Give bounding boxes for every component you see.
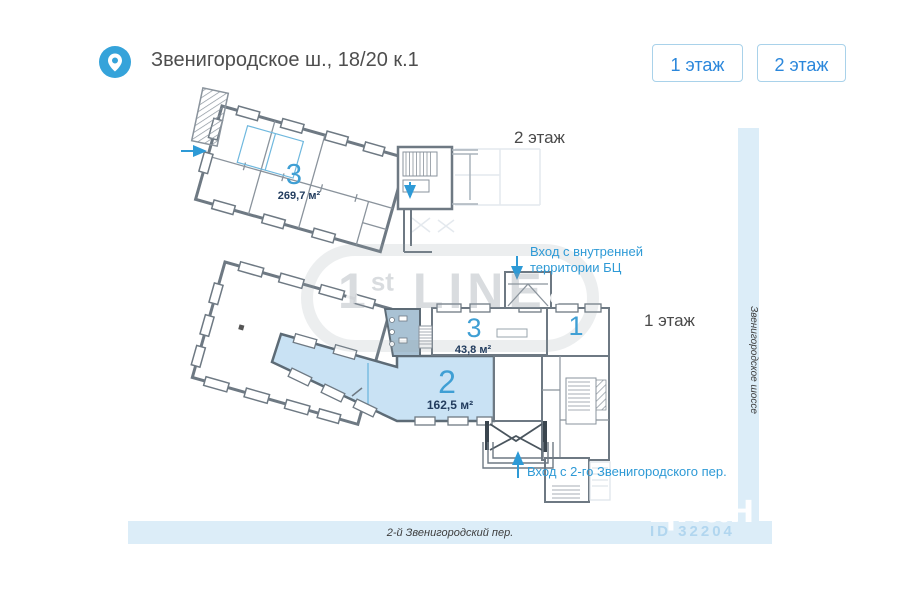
floorplan-viewer: Звенигородское шоссе 2-й Звенигородский … [0,0,900,600]
right-stair-block [542,356,610,502]
floor1-room2-number: 2 [432,364,462,401]
entrance-annotation-top: Вход с внутренней территории БЦ [530,244,643,276]
floor-1-button[interactable]: 1 этаж [652,44,743,82]
location-pin-icon [99,46,131,78]
floor2-room3-number: 3 [282,159,306,192]
entrance-top-line1: Вход с внутренней [530,244,643,260]
entrance-annotation-bottom: Вход с 2-го Звенигородского пер. [527,464,727,480]
floor2-room3-area: 269,7 м² [266,190,332,202]
floor1-label: 1 этаж [644,311,695,331]
floor2-stair-annex [398,147,478,252]
floor1-room1-number: 1 [566,311,586,342]
street-label-right: Звенигородское шоссе [739,210,759,510]
page-title-address: Звенигородское ш., 18/20 к.1 [151,49,419,72]
floor1-room2-area: 162,5 м² [410,398,490,412]
cian-runner-icon [622,494,644,516]
cian-id-watermark: ID 32204 [650,523,735,540]
vestibule-room [494,356,542,421]
wm-st: st [371,266,394,296]
wm-1: 1 [338,263,371,319]
floor2-label: 2 этаж [514,128,565,148]
floor2-plan [181,88,540,256]
entrance-top-line2: территории БЦ [530,260,643,276]
floor-2-button[interactable]: 2 этаж [757,44,846,82]
wm-rest: LINE [394,263,547,319]
floor1-room3-area: 43,8 м² [443,344,503,356]
room3-furniture [497,329,527,337]
first-line-watermark: 1st LINE [338,262,547,320]
